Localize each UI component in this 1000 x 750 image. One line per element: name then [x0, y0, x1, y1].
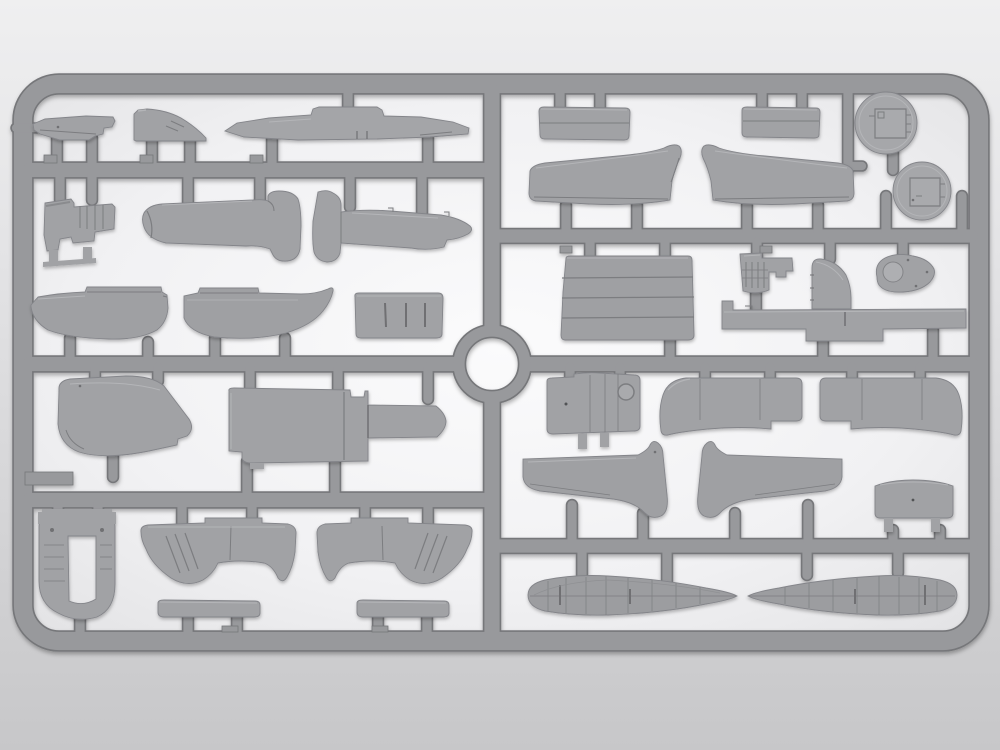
hull-half-left-body [31, 287, 168, 339]
runner-tab [140, 155, 153, 163]
roof-panel-b [742, 107, 820, 138]
equipment-box-detail [618, 384, 634, 400]
aux-panel-detail [931, 518, 940, 532]
fuselage-box-cylinder-detail [250, 463, 264, 469]
equipment-box-detail [578, 433, 587, 449]
cowl-front-plate-detail [915, 285, 918, 288]
roof-panel-a [539, 107, 630, 140]
radiator-shell-detail [100, 528, 104, 532]
radiator-shell-detail [108, 512, 116, 524]
windshield-cowl-detail [138, 110, 146, 111]
runner-tab [250, 155, 263, 163]
runner-tab [760, 246, 772, 253]
step-strip-right [357, 600, 449, 617]
radiator-shell-detail [42, 509, 112, 521]
sprue-photo [0, 0, 1000, 750]
equipment-box-body [547, 373, 640, 434]
radiator-shell-detail [50, 528, 54, 532]
equipment-box-detail [565, 403, 568, 406]
turret-disc-small [893, 162, 951, 220]
turret-disc-small-detail [912, 199, 915, 202]
photo-canvas [0, 0, 1000, 750]
fuselage-rear-left-detail [654, 451, 657, 454]
cowl-front-plate-detail [883, 262, 903, 282]
cowl-front-plate-detail [926, 271, 929, 274]
ridged-panel [561, 256, 694, 340]
equipment-box-detail [600, 432, 609, 447]
aux-panel-detail [884, 518, 893, 532]
runner-tab [222, 626, 238, 632]
turret-disc-large [855, 92, 917, 154]
wing-fillet-panel-detail [79, 385, 82, 388]
runner-tab [44, 155, 57, 163]
cowl-front-plate-detail [907, 259, 910, 262]
radiator-shell-detail [38, 512, 46, 524]
nose-deck-panel-detail [57, 126, 60, 129]
runner-tab [25, 472, 73, 485]
runner-tab [372, 626, 388, 632]
louver-panel-body [355, 293, 443, 338]
louver-panel [355, 293, 443, 338]
louver-panel-detail [385, 303, 386, 327]
step-strip-left [158, 600, 260, 617]
hull-half-left [31, 287, 168, 339]
turret-disc-small-detail [910, 178, 940, 206]
roof-panel-b-body [742, 107, 820, 138]
runner-tab [560, 246, 572, 253]
aux-panel-body [875, 480, 953, 518]
aux-panel-detail [912, 499, 915, 502]
turret-disc-large-detail [875, 109, 906, 138]
